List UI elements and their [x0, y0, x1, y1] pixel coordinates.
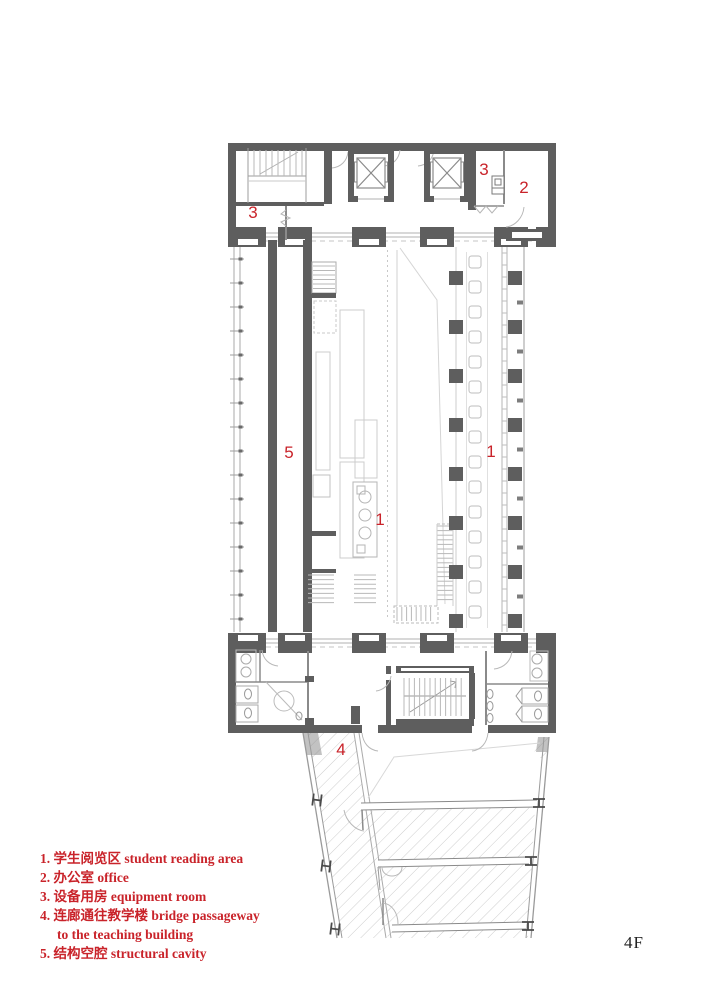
room-label-4-bridge: 4	[336, 740, 345, 759]
hall-stair-4	[397, 607, 431, 621]
legend-line-4: 4. 连廊通往教学楼 bridge passageway	[40, 906, 260, 925]
room-label-5-cavity: 5	[284, 443, 293, 462]
legend-line-2: 2. 办公室 office	[40, 868, 260, 887]
equipment-symbol	[492, 176, 504, 194]
reading-chairs	[469, 256, 481, 618]
hall-stair-2	[354, 575, 376, 603]
floor-plan-page: 3 3 2 5 1 1 4 1. 学生阅览区 student reading a…	[0, 0, 707, 1000]
legend: 1. 学生阅览区 student reading area 2. 办公室 off…	[40, 849, 260, 963]
hall-stair-1	[308, 575, 334, 603]
east-facade-mullions	[502, 253, 507, 625]
bridge	[303, 733, 549, 938]
legend-line-1: 1. 学生阅览区 student reading area	[40, 849, 260, 868]
legend-line-4-continuation: to the teaching building	[40, 925, 260, 944]
washroom-left	[236, 650, 314, 726]
stair-top-left	[248, 148, 306, 203]
legend-line-5: 5. 结构空腔 structural cavity	[40, 944, 260, 963]
washroom-right	[486, 651, 548, 725]
main-hall	[230, 240, 524, 632]
room-label-1-center: 1	[375, 510, 384, 529]
room-label-2-office: 2	[519, 178, 528, 197]
room-label-3-top-right: 3	[479, 160, 488, 179]
reading-pod	[353, 482, 377, 557]
bottom-wall-band	[228, 633, 556, 653]
floor-label: 4F	[624, 933, 644, 953]
elevator-shafts	[348, 148, 470, 202]
west-facade-mullions	[230, 258, 244, 621]
legend-line-3: 3. 设备用房 equipment room	[40, 887, 260, 906]
room-label-3-top-left: 3	[248, 203, 257, 222]
room-label-1-right: 1	[486, 442, 495, 461]
